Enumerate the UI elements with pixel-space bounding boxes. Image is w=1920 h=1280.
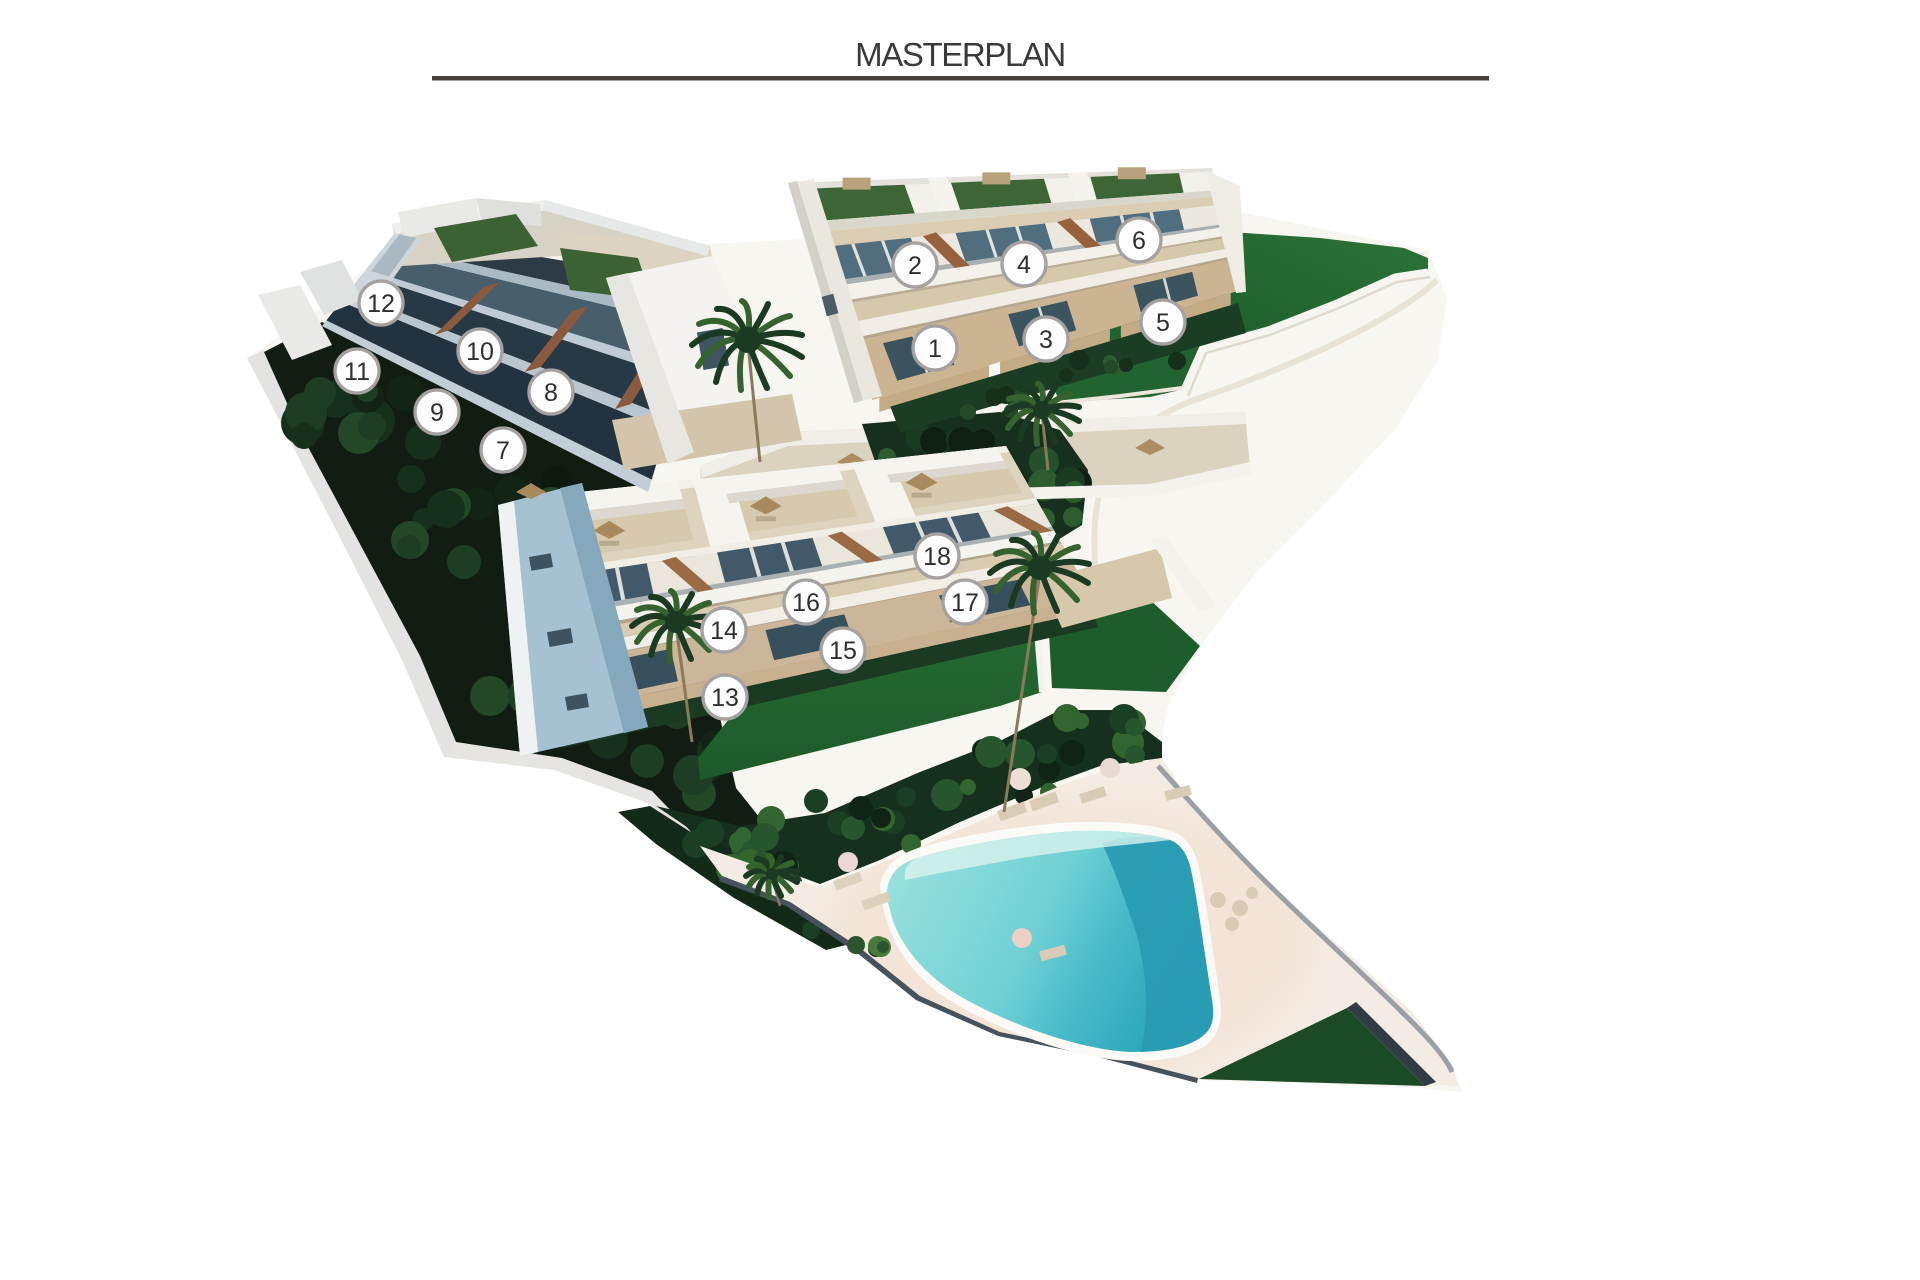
svg-text:6: 6: [1132, 227, 1146, 255]
svg-text:11: 11: [344, 358, 370, 386]
svg-text:18: 18: [923, 543, 951, 571]
svg-text:MASTERPLAN: MASTERPLAN: [855, 36, 1065, 73]
svg-text:13: 13: [711, 684, 739, 712]
svg-text:1: 1: [928, 335, 942, 363]
svg-text:8: 8: [544, 379, 558, 407]
svg-text:15: 15: [829, 637, 857, 665]
svg-text:17: 17: [951, 589, 979, 617]
svg-text:2: 2: [908, 252, 922, 280]
svg-text:7: 7: [496, 437, 510, 465]
svg-text:9: 9: [430, 399, 444, 427]
svg-text:10: 10: [466, 338, 494, 366]
svg-text:4: 4: [1017, 251, 1031, 279]
svg-text:5: 5: [1156, 309, 1170, 337]
svg-text:12: 12: [367, 290, 395, 318]
svg-text:3: 3: [1039, 326, 1053, 354]
svg-text:16: 16: [792, 589, 820, 617]
svg-text:14: 14: [710, 617, 738, 645]
